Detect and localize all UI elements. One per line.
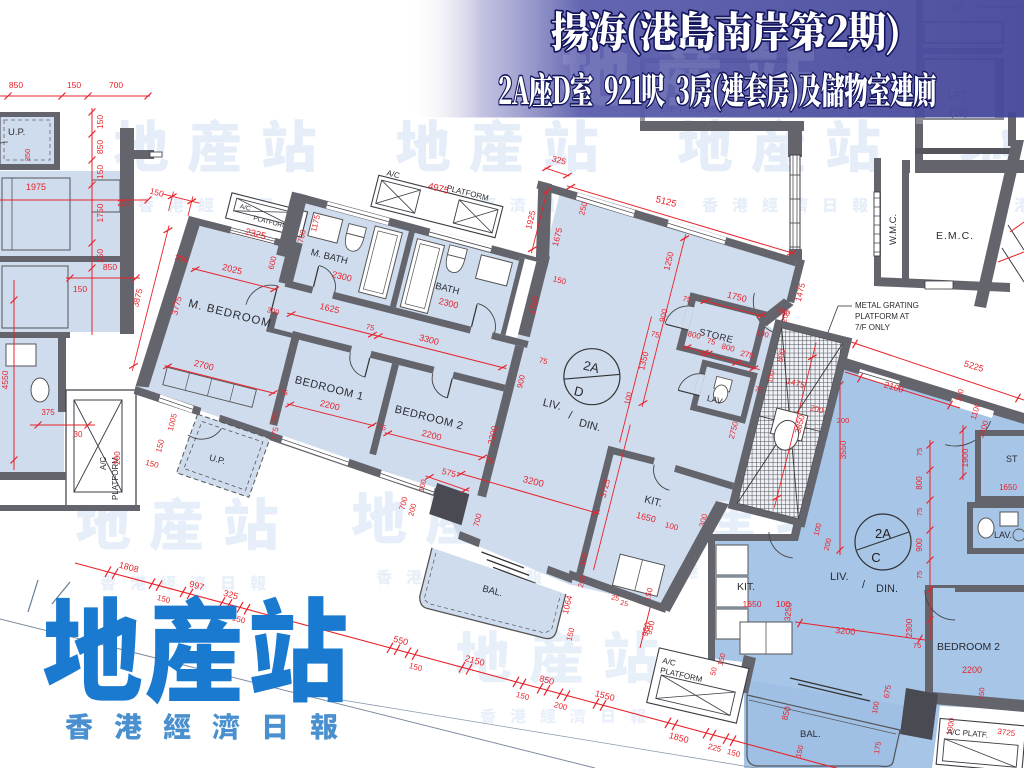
svg-text:1650: 1650: [743, 599, 762, 609]
svg-text:BEDROOM 2: BEDROOM 2: [937, 641, 1000, 653]
svg-text:2200: 2200: [962, 665, 982, 675]
svg-text:150: 150: [67, 80, 81, 90]
svg-text:7/F ONLY: 7/F ONLY: [855, 323, 891, 332]
svg-text:900: 900: [915, 538, 924, 552]
svg-text:A/C: A/C: [99, 456, 108, 470]
svg-text:850: 850: [9, 80, 23, 90]
svg-text:1975: 1975: [26, 182, 46, 192]
svg-text:1900: 1900: [960, 448, 970, 467]
svg-text:850: 850: [103, 262, 117, 272]
svg-text:LAV.: LAV.: [994, 530, 1012, 540]
svg-text:1750: 1750: [95, 203, 105, 222]
svg-text:150: 150: [95, 165, 105, 179]
svg-text:BAL.: BAL.: [800, 729, 821, 740]
svg-text:2A: 2A: [875, 526, 891, 541]
svg-text:200: 200: [837, 416, 850, 425]
svg-text:W.M.C.: W.M.C.: [888, 214, 899, 245]
svg-text:PLATFORM AT: PLATFORM AT: [855, 312, 909, 321]
svg-text:4550: 4550: [0, 370, 10, 389]
svg-text:C: C: [871, 550, 880, 565]
svg-text:METAL GRATING: METAL GRATING: [855, 301, 919, 310]
svg-text:3200: 3200: [835, 625, 856, 637]
svg-text:3250: 3250: [782, 602, 794, 622]
svg-text:150: 150: [95, 115, 105, 129]
svg-text:225: 225: [117, 199, 131, 208]
svg-text:375: 375: [41, 408, 55, 417]
svg-text:200: 200: [113, 451, 122, 465]
svg-text:75: 75: [915, 571, 924, 579]
svg-text:75: 75: [915, 448, 924, 456]
svg-text:30: 30: [74, 430, 83, 439]
svg-text:LIV.: LIV.: [830, 571, 849, 583]
svg-text:350: 350: [23, 149, 32, 162]
svg-text:KIT.: KIT.: [737, 581, 755, 593]
svg-text:850: 850: [95, 140, 105, 154]
svg-text:75: 75: [913, 641, 921, 650]
svg-text:2300: 2300: [904, 618, 914, 637]
svg-text:1650: 1650: [999, 483, 1017, 492]
svg-text:75: 75: [915, 508, 924, 516]
svg-text:150: 150: [73, 284, 87, 294]
svg-text:700: 700: [109, 80, 123, 90]
svg-text:DIN.: DIN.: [876, 583, 898, 595]
svg-text:150: 150: [95, 249, 105, 263]
svg-text:U.P.: U.P.: [8, 127, 25, 138]
svg-text:800: 800: [915, 476, 924, 490]
svg-text:150: 150: [976, 687, 986, 700]
svg-text:E.M.C.: E.M.C.: [936, 230, 974, 242]
svg-text:ST: ST: [1006, 454, 1018, 464]
